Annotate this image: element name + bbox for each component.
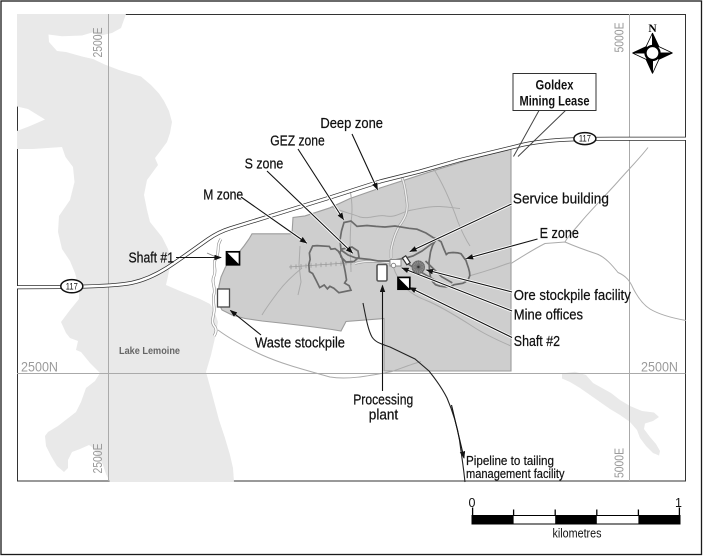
svg-text:Shaft #2: Shaft #2 bbox=[514, 334, 560, 350]
svg-text:Deep zone: Deep zone bbox=[320, 116, 383, 132]
svg-text:5000E: 5000E bbox=[613, 448, 627, 478]
svg-text:2500N: 2500N bbox=[641, 359, 678, 374]
svg-text:Mine offices: Mine offices bbox=[514, 308, 583, 324]
svg-text:N: N bbox=[648, 23, 657, 35]
svg-text:Goldex: Goldex bbox=[536, 78, 574, 93]
svg-text:2500E: 2500E bbox=[91, 444, 105, 474]
svg-text:Mining Lease: Mining Lease bbox=[520, 94, 590, 109]
svg-text:M zone: M zone bbox=[203, 188, 243, 204]
svg-text:Shaft #1: Shaft #1 bbox=[129, 250, 175, 266]
svg-text:Ore stockpile facility: Ore stockpile facility bbox=[514, 288, 632, 304]
svg-text:plant: plant bbox=[369, 407, 398, 423]
svg-text:2500E: 2500E bbox=[91, 28, 105, 58]
svg-text:Service building: Service building bbox=[513, 191, 609, 207]
svg-text:1: 1 bbox=[675, 496, 682, 510]
svg-text:2500N: 2500N bbox=[21, 359, 58, 374]
svg-text:management facility: management facility bbox=[466, 466, 565, 481]
svg-text:Processing: Processing bbox=[353, 392, 413, 408]
svg-text:117: 117 bbox=[579, 134, 591, 144]
svg-text:Lake Lemoine: Lake Lemoine bbox=[119, 345, 180, 357]
svg-text:117: 117 bbox=[66, 282, 78, 292]
svg-text:5000E: 5000E bbox=[613, 23, 627, 53]
svg-text:E zone: E zone bbox=[540, 226, 579, 242]
svg-text:S zone: S zone bbox=[245, 156, 284, 172]
svg-text:Waste stockpile: Waste stockpile bbox=[255, 336, 345, 352]
svg-text:GEZ zone: GEZ zone bbox=[270, 134, 325, 150]
svg-text:0: 0 bbox=[469, 496, 476, 510]
svg-text:kilometres: kilometres bbox=[553, 527, 602, 541]
